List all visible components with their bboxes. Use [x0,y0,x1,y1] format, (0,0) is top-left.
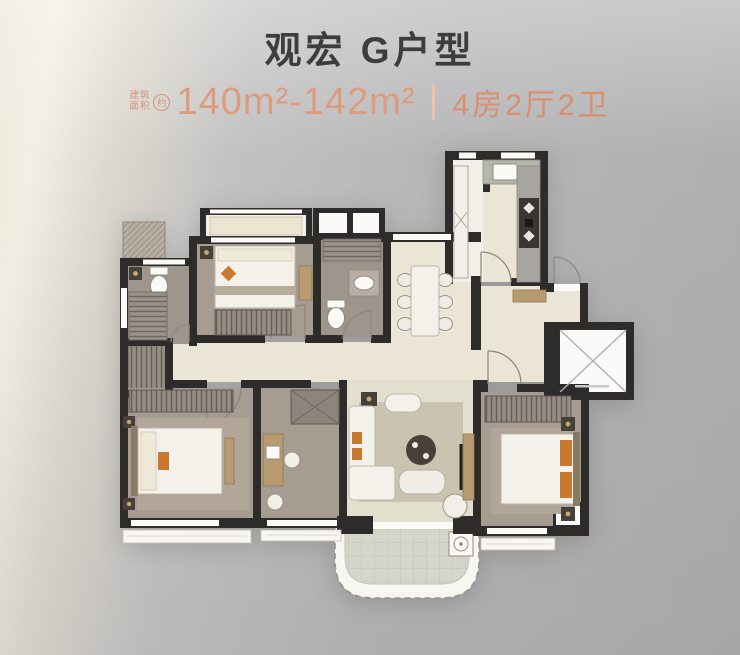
shower [129,292,167,340]
accent-cushion [352,448,362,460]
area-value: 140m²-142m² [176,81,415,124]
specs-row: 建筑 面积 约 140m²-142m² 4房2厅2卫 [0,80,740,124]
dresser [299,266,312,300]
coffee-table [406,435,436,465]
area-label: 建筑 面积 [129,91,150,112]
window [393,234,451,240]
bay-window-pane [353,213,379,233]
accent-cushion [352,432,362,444]
window [210,210,302,214]
shower [323,239,381,261]
bolster-cushion [385,394,421,412]
area-label-line2: 面积 [129,102,150,113]
pillows [141,432,156,490]
bed-bench [225,438,234,484]
living-room [349,392,474,518]
toilet-tank [150,267,168,275]
window [459,153,476,159]
window [131,520,219,526]
ottoman [399,470,445,494]
approx-badge: 约 [153,94,170,111]
pillow [560,472,572,498]
chair [438,274,453,287]
window [143,260,185,265]
corridor-floor [167,342,479,382]
balcony-door-sill [373,522,453,529]
rooms-value: 4房2厅2卫 [453,80,611,124]
elevator-door [575,385,609,388]
headboard [131,426,138,496]
floor-plan-image [115,140,645,610]
utility-counter [454,166,468,278]
window [501,153,535,159]
window [211,238,295,243]
dining-table [411,266,439,336]
floorplan-poster: 观宏 G户型 建筑 面积 约 140m²-142m² 4房2厅2卫 [0,0,740,655]
dining-room [398,266,453,336]
bedroom-3 [485,396,580,521]
desk [263,434,283,486]
accent-cushion [158,452,169,470]
laptop [266,446,280,459]
spec-divider [432,84,435,120]
wardrobe [129,390,233,412]
shoe-cabinet [513,290,546,302]
chair [438,296,453,309]
tv-console [463,434,474,500]
south-balcony [335,526,479,598]
window [487,528,547,534]
hall-closet [128,344,167,392]
bay-window-pane [319,213,347,233]
balcony-bench [210,217,302,235]
master-bedroom [123,390,249,510]
chair [438,318,453,331]
chair [398,296,413,309]
entry-threshold [554,284,580,291]
chair [398,274,413,287]
headboard [573,432,580,506]
pillows [218,249,292,261]
pouf [267,494,283,510]
foyer [513,290,546,302]
sofa-chaise [349,466,395,500]
wardrobe [485,396,571,422]
pillow [560,440,572,466]
toilet-tank [327,300,345,308]
sink [354,276,374,290]
window [121,288,127,328]
window [267,520,337,526]
toilet [328,308,345,329]
ac-niche [123,222,165,258]
bed-throw [215,286,295,295]
chair [398,318,413,331]
kitchen-sink [493,164,517,180]
tv [460,444,463,490]
wardrobe [215,310,291,335]
desk-chair [284,452,300,468]
page-title: 观宏 G户型 [0,20,740,74]
